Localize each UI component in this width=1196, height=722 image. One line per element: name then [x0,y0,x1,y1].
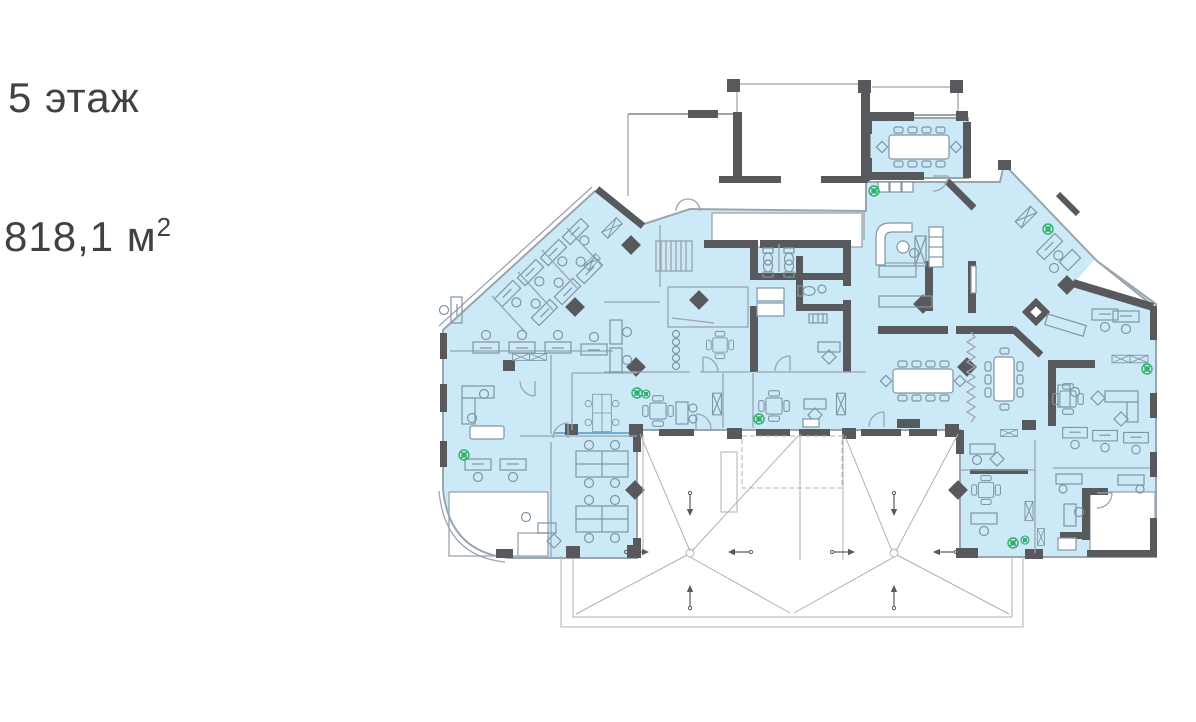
floor-plan [0,0,1196,722]
slide-canvas: 5 этаж 818,1 м2 [0,0,1196,722]
bottom-right-room [1090,492,1155,553]
roof-shaft [721,452,737,512]
